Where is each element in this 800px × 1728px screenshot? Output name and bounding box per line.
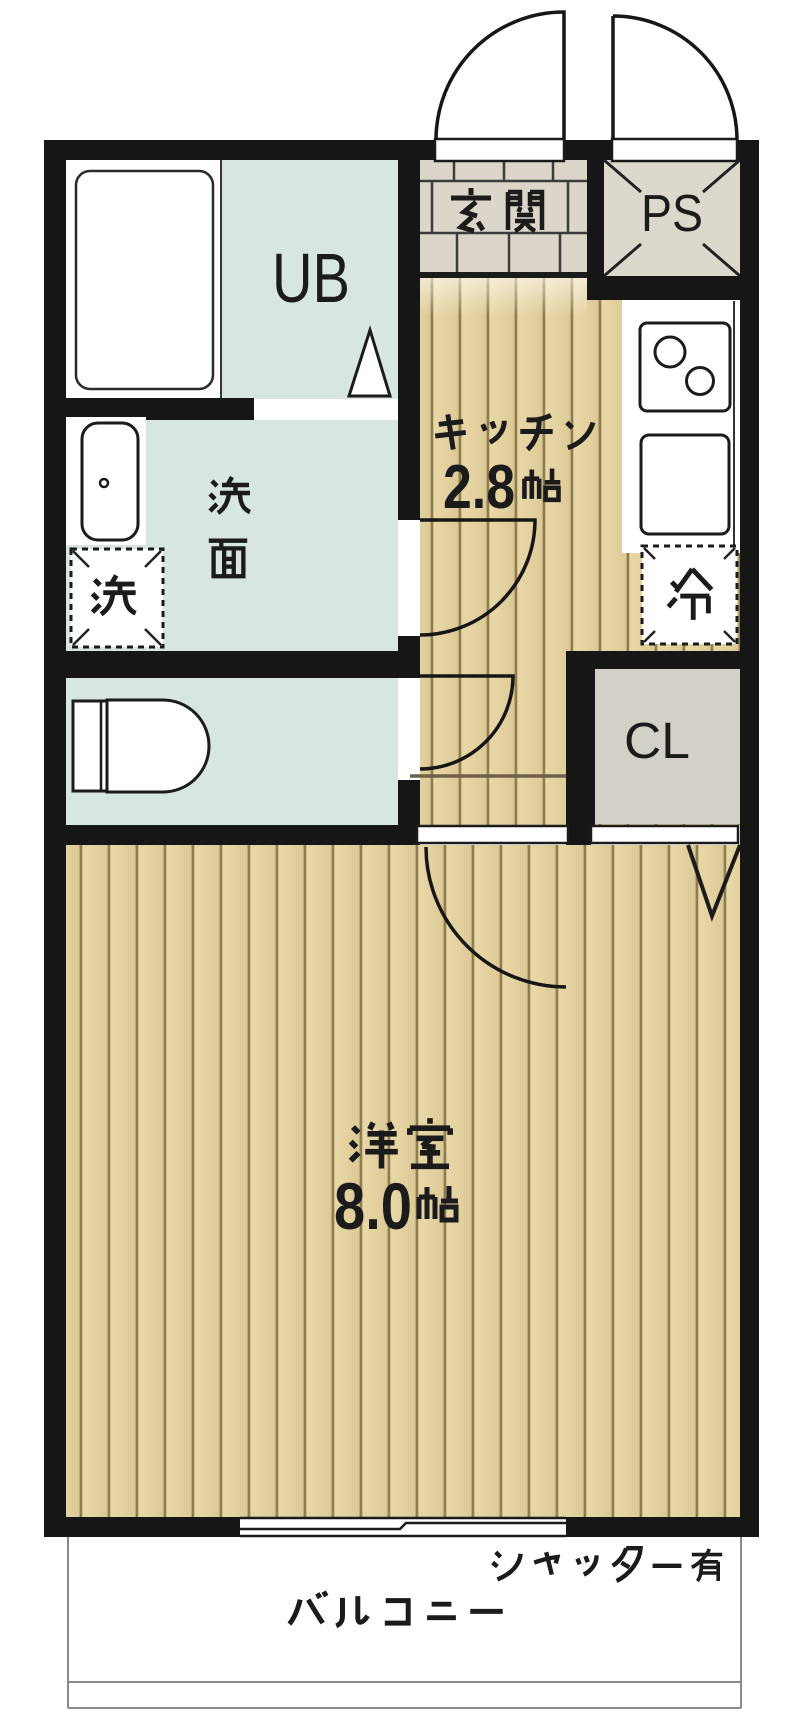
svg-text:8.0: 8.0 xyxy=(334,1169,412,1243)
svg-text:CL: CL xyxy=(624,712,690,769)
svg-text:UB: UB xyxy=(272,239,350,317)
svg-text:2.8: 2.8 xyxy=(443,453,515,522)
svg-text:PS: PS xyxy=(641,185,703,243)
